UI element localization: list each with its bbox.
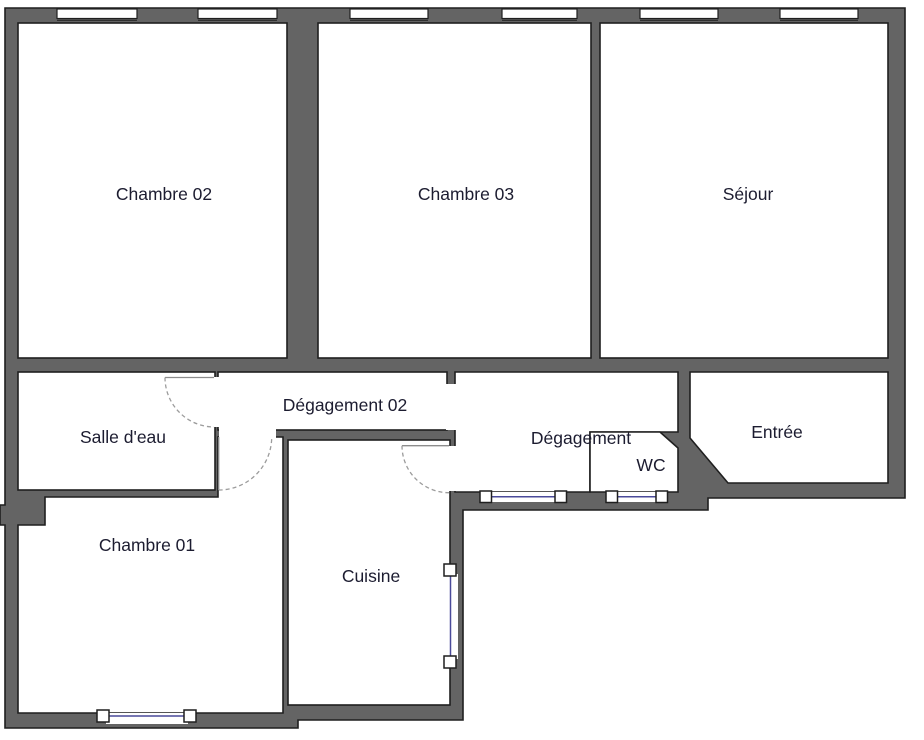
room-label-sejour: Séjour [723,184,774,204]
window-sejour-right [780,9,858,20]
room-label-cuisine: Cuisine [342,566,400,586]
opening-degagement [446,384,456,430]
room-label-salle-deau: Salle d'eau [80,427,166,447]
opening-cuisine [449,446,457,491]
room-label-entree: Entrée [751,422,803,442]
floor-plan-page: Chambre 02 Chambre 03 Séjour Salle d'eau… [0,0,924,740]
opening-salle-deau [214,377,221,427]
window-cuisine [444,564,458,668]
window-degagement [480,491,567,503]
room-label-degagement: Dégagement [531,428,631,448]
room-label-degagement-02: Dégagement 02 [283,395,408,415]
window-chambre03-left [350,9,428,20]
room-label-chambre-02: Chambre 02 [116,184,212,204]
window-chambre02-right [198,9,277,20]
opening-chambre-01 [219,429,276,439]
room-label-wc: WC [636,455,665,475]
window-sejour-left [640,9,718,20]
room-label-chambre-01: Chambre 01 [99,535,195,555]
window-chambre02-left [57,9,137,20]
window-wc [606,491,668,503]
floor-plan: Chambre 02 Chambre 03 Séjour Salle d'eau… [0,0,924,740]
room-label-chambre-03: Chambre 03 [418,184,514,204]
window-chambre03-right [502,9,577,20]
